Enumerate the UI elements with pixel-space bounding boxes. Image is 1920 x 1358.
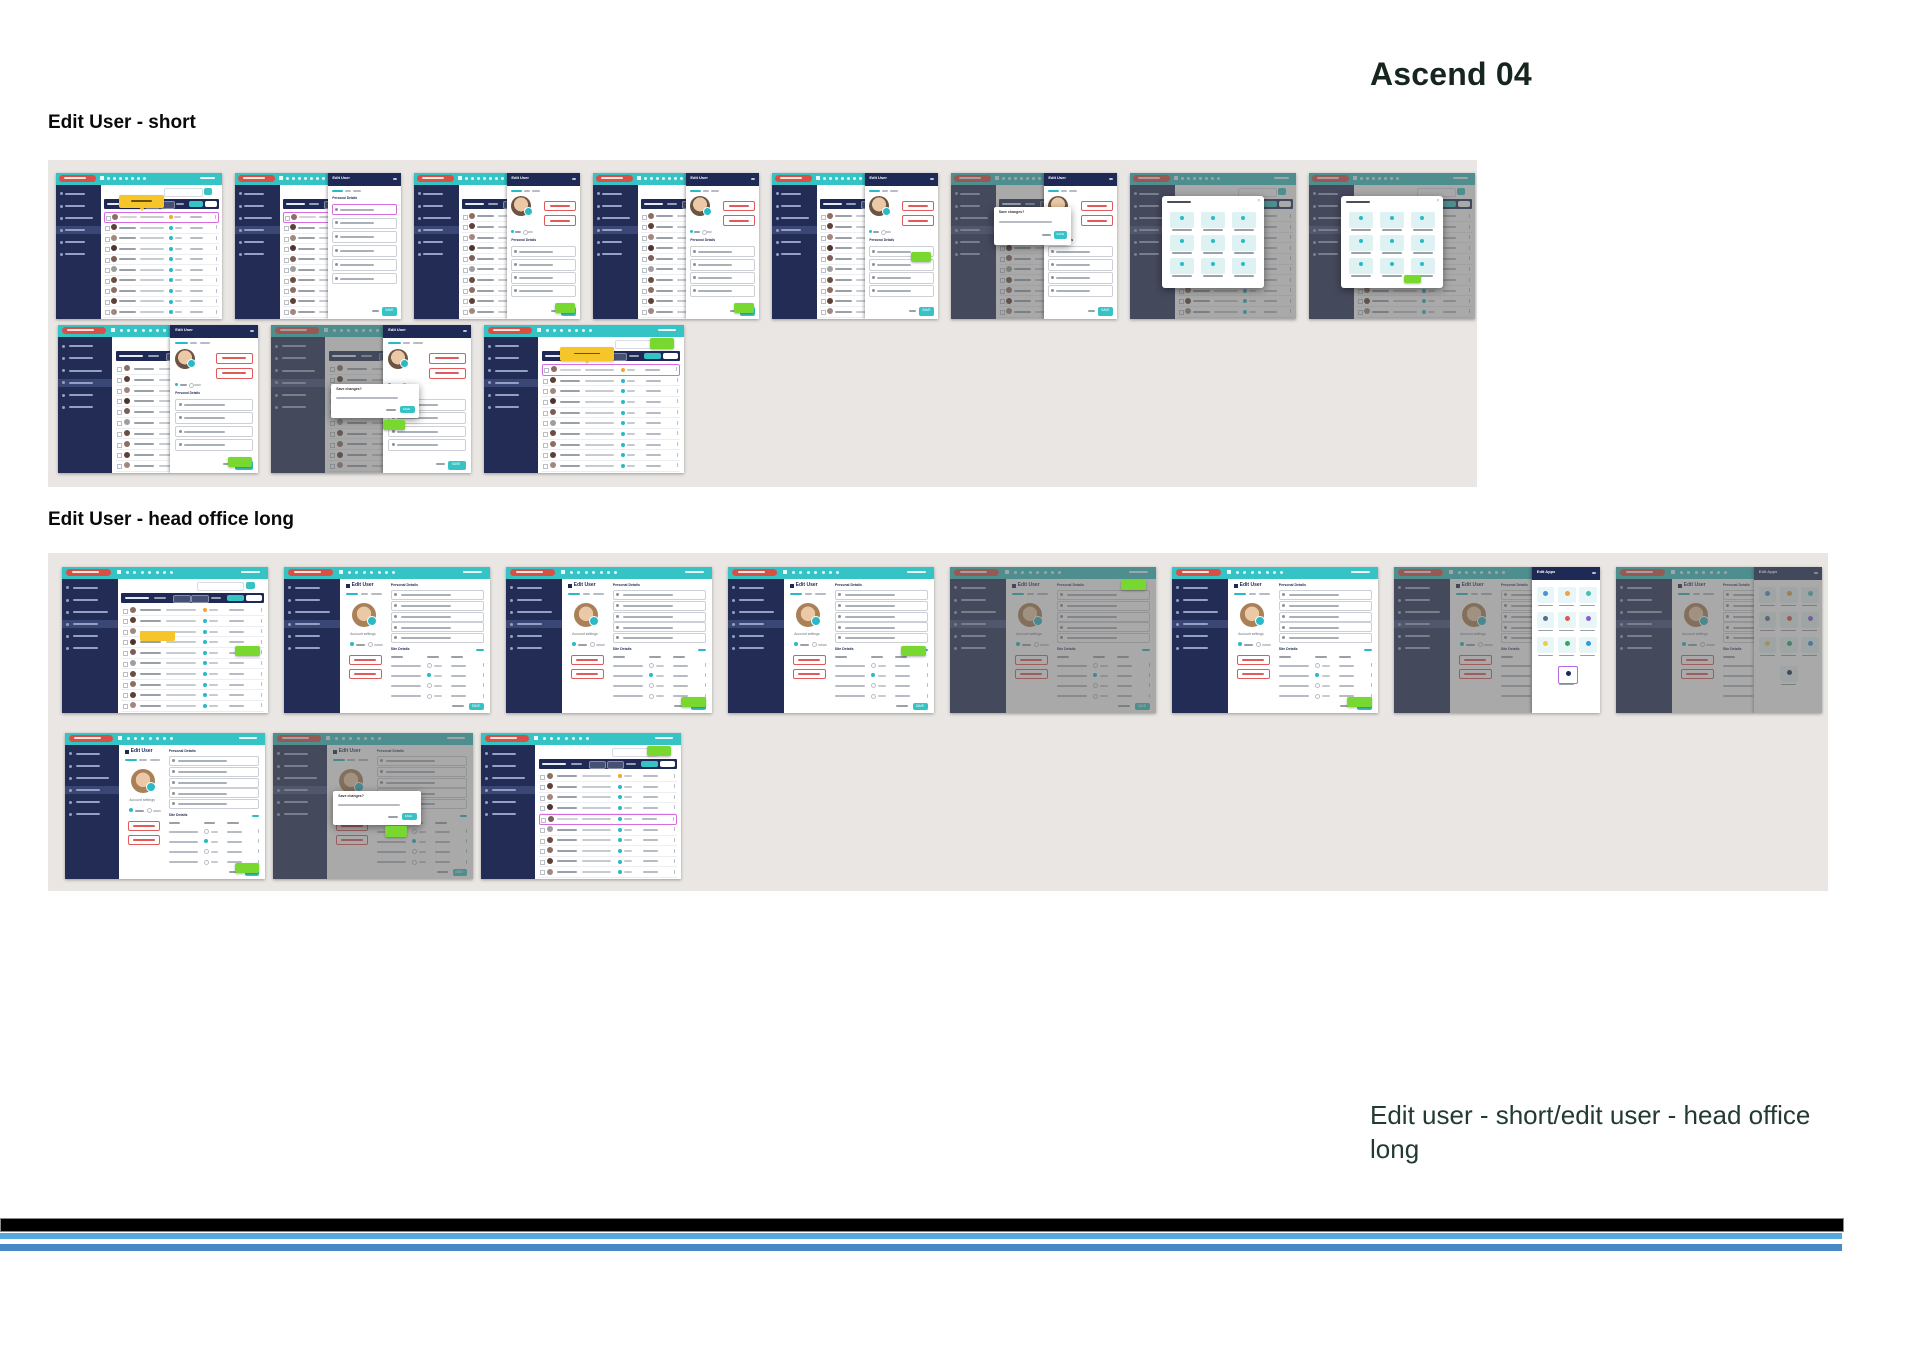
text-bar: [1183, 611, 1217, 613]
icon-dot: [838, 636, 841, 639]
text-bar: [576, 673, 598, 675]
text-bar: [175, 269, 182, 271]
red-outline-button: [1237, 669, 1271, 679]
save-label: SAVE: [922, 308, 930, 312]
row-checkbox: [463, 268, 468, 273]
text-bar: [627, 380, 635, 382]
text-bar: [656, 665, 664, 667]
status-outline: [871, 694, 876, 699]
form-field: [690, 285, 754, 296]
icon-dot: [288, 611, 291, 614]
text-bar: [1242, 659, 1264, 661]
text-bar: [295, 635, 319, 637]
text-bar: [372, 310, 379, 312]
icon-dot: [732, 635, 735, 638]
icon-dot: [621, 368, 625, 372]
mini-sidebar: [65, 745, 119, 879]
text-bar: [492, 777, 525, 779]
icon-dot: [546, 329, 549, 332]
mini-app: Edit UserPersonal DetailsSAVESave change…: [271, 325, 471, 473]
icon-dot: [648, 245, 654, 251]
text-bar: [244, 241, 264, 243]
text-bar: [423, 205, 443, 207]
icon-dot: [179, 430, 182, 433]
filter-bar: [539, 759, 678, 769]
text-bar: [572, 178, 576, 180]
close-icon: ×: [1436, 198, 1439, 204]
text-bar: [244, 205, 264, 207]
filter-dropdown: [607, 761, 624, 769]
icon-dot: [477, 177, 480, 180]
sidebar-item: [65, 786, 119, 794]
icon-dot: [618, 838, 622, 842]
icon-dot: [648, 213, 654, 219]
text-bar: [261, 608, 262, 612]
text-bar: [298, 237, 315, 239]
sidebar-item: [593, 202, 638, 210]
form-field: [511, 259, 575, 270]
text-bar: [550, 205, 570, 207]
mini-sidebar: [506, 579, 562, 713]
icon-dot: [680, 177, 683, 180]
icon-dot: [111, 277, 117, 283]
form-field: [332, 204, 396, 215]
text-bar: [896, 705, 908, 707]
text-bar: [135, 810, 144, 812]
text-bar: [845, 594, 895, 596]
text-bar: [582, 871, 611, 873]
icon-dot: [776, 241, 779, 244]
text-bar: [495, 406, 519, 408]
icon-dot: [648, 266, 654, 272]
text-bar: [835, 695, 865, 697]
mini-app: Edit UserAccount settingsPersonal Detail…: [506, 567, 712, 713]
text-bar: [656, 675, 664, 677]
table-row: [121, 690, 264, 701]
text-bar: [477, 247, 494, 249]
icon-dot: [69, 765, 72, 768]
text-bar: [845, 627, 895, 629]
user-photo: [352, 603, 376, 627]
text-bar: [140, 673, 161, 675]
icon-dot: [616, 615, 619, 618]
text-bar: [1322, 675, 1330, 677]
text-bar: [140, 290, 164, 292]
icon-dot: [618, 828, 622, 832]
icon-dot: [111, 287, 117, 293]
text-bar: [835, 268, 852, 270]
text-bar: [488, 203, 497, 205]
text-bar: [585, 465, 614, 467]
icon-dot: [488, 345, 491, 348]
row-checkbox: [540, 828, 545, 833]
status-outline: [649, 663, 654, 668]
text-bar: [434, 665, 442, 667]
text-bar: [1234, 229, 1255, 231]
icon-dot: [827, 213, 833, 219]
icon-dot: [187, 359, 196, 368]
icon-dot: [204, 839, 208, 843]
row-checkbox: [463, 257, 468, 262]
text-bar: [184, 444, 226, 446]
sidebar-item: [65, 750, 119, 758]
text-bar: [175, 248, 182, 250]
text-bar: [560, 454, 581, 456]
icon-dot: [239, 205, 242, 208]
text-bar: [560, 422, 581, 424]
filter-action-button: [227, 595, 244, 601]
text-bar: [175, 258, 182, 260]
row-checkbox: [540, 860, 545, 865]
icon-dot: [514, 276, 517, 279]
table-row: [542, 397, 681, 408]
text-bar: [298, 311, 315, 313]
text-bar: [261, 640, 262, 644]
icon-dot: [621, 453, 625, 457]
icon-dot: [827, 298, 833, 304]
table-row: [104, 297, 219, 308]
text-bar: [204, 822, 216, 824]
row-checkbox: [284, 247, 289, 252]
text-bar: [150, 759, 160, 761]
text-bar: [169, 851, 198, 853]
text-bar: [602, 229, 622, 231]
icon-dot: [841, 177, 844, 180]
icon-dot: [776, 192, 779, 195]
screenshot-thumbnail-user-list-edit-panel-photo: Edit UserPersonal DetailsSAVE: [593, 173, 759, 319]
text-bar: [871, 656, 883, 658]
text-bar: [140, 279, 164, 281]
text-bar: [643, 807, 658, 809]
text-bar: [244, 253, 264, 255]
icon-dot: [156, 329, 159, 332]
user-icon: [568, 584, 572, 588]
icon-dot: [111, 298, 117, 304]
text-bar: [72, 571, 99, 573]
text-bar: [1315, 656, 1327, 658]
mini-app: [481, 733, 681, 879]
text-bar: [835, 300, 852, 302]
text-bar: [140, 609, 161, 611]
icon-dot: [124, 430, 130, 436]
icon-dot: [239, 217, 242, 220]
text-bar: [73, 623, 97, 625]
icon-dot: [203, 661, 207, 665]
text-bar: [627, 369, 635, 371]
row-checkbox: [105, 258, 110, 263]
icon-dot: [400, 359, 409, 368]
text-bar: [519, 264, 553, 266]
icon-dot: [547, 804, 553, 810]
text-bar: [805, 593, 813, 595]
row-checkbox: [821, 257, 826, 262]
text-bar: [927, 663, 928, 667]
text-bar: [560, 401, 581, 403]
text-bar: [560, 412, 581, 414]
form-field: [391, 612, 484, 622]
red-outline-button: [349, 669, 383, 679]
icon-dot: [1176, 623, 1179, 626]
icon-dot: [179, 403, 182, 406]
icon-dot: [133, 571, 136, 574]
text-bar: [436, 463, 445, 465]
save-label: SAVE: [1056, 232, 1064, 236]
text-bar: [676, 367, 677, 371]
text-bar: [1289, 594, 1339, 596]
text-bar: [623, 627, 673, 629]
icon-dot: [134, 329, 137, 332]
text-bar: [557, 818, 578, 820]
text-bar: [873, 231, 879, 233]
site-details-label: Site Details: [391, 647, 410, 651]
mini-topbar: [506, 567, 712, 579]
icon-dot: [1566, 671, 1571, 676]
picker-icon-tile: [1349, 258, 1374, 274]
text-bar: [582, 796, 611, 798]
text-bar: [391, 685, 421, 687]
filter-action-button: [189, 201, 203, 207]
icon-dot: [827, 245, 833, 251]
icon-dot: [510, 623, 513, 626]
form-field: [835, 601, 928, 611]
panel-header: Edit User: [865, 173, 938, 186]
text-bar: [895, 695, 910, 697]
text-bar: [1559, 684, 1574, 686]
text-bar: [557, 839, 578, 841]
icon-dot: [485, 777, 488, 780]
icon-dot: [169, 236, 173, 240]
sidebar-item: [65, 762, 119, 770]
text-bar: [878, 685, 886, 687]
icon-dot: [66, 586, 69, 589]
panel-header: Edit User: [507, 173, 580, 186]
icon-dot: [1390, 262, 1394, 266]
radio-outline: [1256, 642, 1261, 647]
save-button: SAVE: [919, 307, 934, 316]
sidebar-item: [62, 632, 118, 640]
sidebar-item: [593, 250, 638, 258]
picker-icon-tile: [1232, 258, 1257, 274]
user-photo: [131, 769, 155, 793]
red-outline-button: [216, 368, 253, 379]
text-bar: [401, 616, 451, 618]
sidebar-item: [65, 774, 119, 782]
text-bar: [216, 236, 217, 240]
icon-dot: [616, 604, 619, 607]
text-bar: [1172, 229, 1193, 231]
mini-app: Edit UserAccount settingsPersonal Detail…: [273, 733, 473, 879]
text-bar: [229, 684, 245, 686]
personal-details-label: Personal Details: [511, 238, 536, 242]
text-bar: [209, 662, 218, 664]
red-outline-button: [571, 669, 605, 679]
icon-dot: [565, 737, 568, 740]
icon-dot: [1390, 216, 1394, 220]
text-bar: [739, 611, 773, 613]
sidebar-item: [506, 644, 562, 652]
text-bar: [677, 399, 678, 403]
row-checkbox: [123, 693, 128, 698]
table-row: [542, 364, 681, 376]
sidebar-item: [58, 379, 112, 387]
filter-search-box: [205, 201, 218, 207]
panel-header: Edit User: [686, 173, 759, 186]
text-bar: [1592, 572, 1596, 574]
sidebar-item: [284, 644, 340, 652]
app-icon-tile: [1558, 666, 1578, 684]
sidebar-item: [772, 202, 817, 210]
icon-dot: [66, 647, 69, 650]
icon-dot: [292, 177, 295, 180]
icon-dot: [799, 571, 802, 574]
user-photo: [511, 196, 531, 216]
row-checkbox: [642, 268, 647, 273]
text-bar: [190, 300, 203, 302]
text-bar: [169, 822, 181, 824]
icon-dot: [488, 357, 491, 360]
icon-dot: [648, 255, 654, 261]
icon-dot: [469, 298, 475, 304]
text-bar: [1289, 637, 1339, 639]
text-bar: [1580, 655, 1595, 657]
icon-dot: [169, 289, 173, 293]
text-bar: [166, 662, 196, 664]
icon-dot: [585, 571, 588, 574]
text-bar: [119, 227, 136, 229]
radio-outline: [812, 642, 817, 647]
text-bar: [1056, 264, 1090, 266]
icon-dot: [1315, 673, 1319, 677]
sidebar-item: [1172, 596, 1228, 604]
icon-dot: [859, 177, 862, 180]
text-bar: [76, 813, 100, 815]
text-bar: [677, 453, 678, 457]
icon-dot: [1051, 289, 1054, 292]
text-bar: [374, 644, 383, 646]
mini-app: Edit UserAccount settingsPersonal Detail…: [284, 567, 490, 713]
mini-sidebar: [772, 185, 817, 319]
icon-dot: [124, 376, 130, 382]
mini-app: Edit UserAccount settingsPersonal Detail…: [728, 567, 934, 713]
dialog-save-button: SAVE: [1054, 231, 1067, 239]
status-outline: [204, 849, 209, 854]
icon-dot: [553, 329, 556, 332]
row-checkbox: [543, 453, 548, 458]
app-icon-tile: [1537, 587, 1555, 603]
filter-action-button: [644, 353, 661, 360]
form-field: [332, 273, 396, 284]
mini-topbar: [1172, 567, 1378, 579]
text-bar: [340, 250, 374, 252]
icon-dot: [703, 207, 712, 216]
icon-dot: [130, 628, 136, 634]
text-bar: [574, 353, 600, 355]
text-bar: [490, 737, 516, 739]
icon-dot: [394, 593, 397, 596]
text-bar: [492, 789, 516, 791]
text-bar: [1109, 178, 1113, 180]
text-bar: [452, 705, 464, 707]
text-bar: [140, 258, 164, 260]
text-bar: [582, 818, 611, 820]
text-bar: [176, 203, 184, 205]
icon-dot: [488, 394, 491, 397]
text-bar: [211, 597, 221, 599]
icon-dot: [693, 263, 696, 266]
form-field: [869, 272, 933, 283]
text-bar: [602, 241, 622, 243]
text-bar: [643, 860, 658, 862]
row-checkbox: [642, 225, 647, 230]
icon-dot: [172, 759, 175, 762]
icon-dot: [597, 253, 600, 256]
save-button: SAVE: [382, 307, 397, 316]
screenshot-thumbnail-edit-user-form-annotated: Edit UserAccount settingsPersonal Detail…: [65, 733, 265, 879]
row-checkbox: [117, 464, 122, 469]
text-bar: [517, 635, 541, 637]
icon-dot: [621, 379, 625, 383]
sidebar-item: [62, 644, 118, 652]
row-checkbox: [123, 672, 128, 677]
icon-dot: [814, 571, 817, 574]
personal-details-label: Personal Details: [391, 583, 418, 587]
icon-dot: [827, 287, 833, 293]
text-bar: [542, 763, 566, 765]
app-icon-tile: [1579, 612, 1597, 628]
row-checkbox: [284, 279, 289, 284]
icon-dot: [732, 647, 735, 650]
text-bar: [1382, 252, 1403, 254]
icon-dot: [169, 247, 173, 251]
text-bar: [229, 662, 245, 664]
row-checkbox: [543, 400, 548, 405]
icon-dot: [827, 308, 833, 314]
text-bar: [69, 382, 93, 384]
icon-dot: [550, 441, 556, 447]
text-bar: [178, 803, 227, 805]
icon-dot: [149, 329, 152, 332]
text-bar: [69, 345, 93, 347]
row-checkbox: [821, 236, 826, 241]
icon-dot: [1241, 262, 1245, 266]
sidebar-item: [484, 379, 538, 387]
icon-dot: [1282, 604, 1285, 607]
filter-dropdown: [589, 761, 606, 769]
icon-dot: [693, 250, 696, 253]
apps-grid-icon: [534, 736, 538, 740]
sidebar-item: [62, 584, 118, 592]
mini-topbar: [62, 567, 268, 579]
icon-dot: [335, 263, 338, 266]
text-bar: [244, 193, 264, 195]
mini-edit-user-form: Edit UserAccount settingsPersonal Detail…: [340, 579, 490, 713]
icon-dot: [621, 411, 625, 415]
icon-dot: [469, 287, 475, 293]
text-bar: [698, 251, 732, 253]
text-bar: [646, 465, 661, 467]
icon-dot: [550, 737, 553, 740]
icon-dot: [618, 806, 622, 810]
green-annotation-tooltip: [1121, 580, 1146, 590]
text-bar: [200, 342, 210, 344]
sidebar-item: [62, 608, 118, 616]
table-row: [121, 606, 264, 617]
text-bar: [166, 673, 196, 675]
text-bar: [674, 870, 675, 874]
text-bar: [878, 665, 886, 667]
text-bar: [560, 369, 581, 371]
icon-dot: [776, 229, 779, 232]
